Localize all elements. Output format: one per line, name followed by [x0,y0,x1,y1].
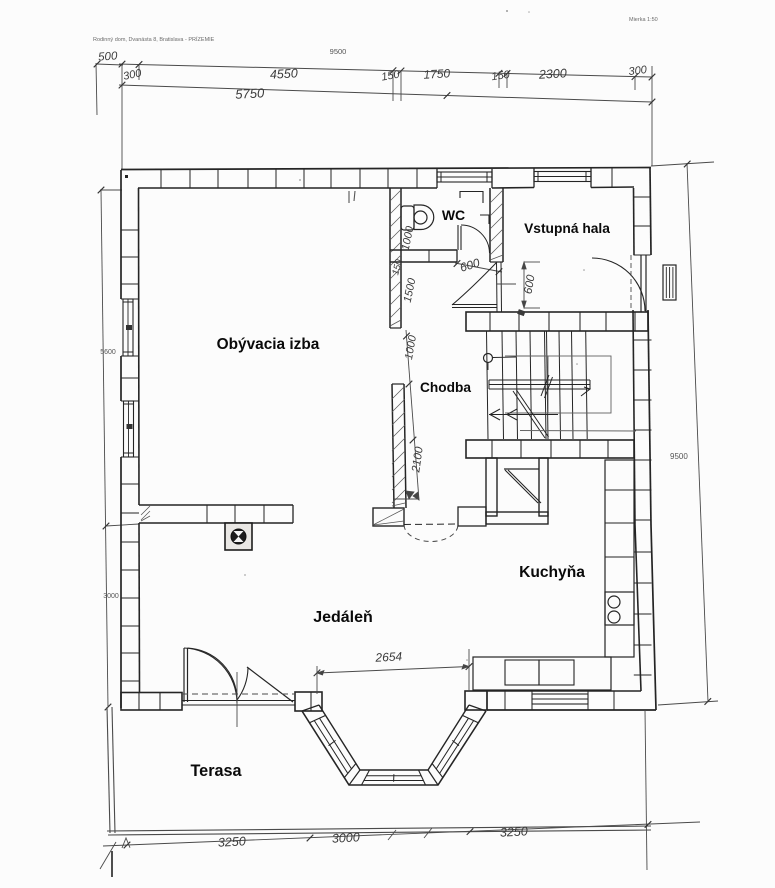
svg-text:300: 300 [628,64,648,78]
svg-text:5750: 5750 [235,85,265,102]
svg-text:Terasa: Terasa [191,762,243,780]
svg-text:Rodinný dom, Dvanásta 8, Brati: Rodinný dom, Dvanásta 8, Bratislava - PR… [93,36,215,43]
svg-text:3250: 3250 [500,824,529,839]
svg-text:Mierka 1:50: Mierka 1:50 [629,17,658,23]
svg-text:3250: 3250 [218,834,247,849]
svg-text:2654: 2654 [374,649,403,664]
svg-text:500: 500 [98,50,119,63]
svg-text:3000: 3000 [103,593,119,600]
svg-text:Kuchyňa: Kuchyňa [519,564,585,581]
svg-text:5600: 5600 [100,349,116,356]
svg-text:3000: 3000 [332,830,361,845]
svg-text:Obývacia izba: Obývacia izba [217,336,320,353]
svg-text:Jedáleň: Jedáleň [313,609,373,626]
svg-text:1750: 1750 [423,66,451,81]
svg-text:4550: 4550 [270,66,299,81]
svg-text:Vstupná hala: Vstupná hala [524,221,610,236]
svg-text:9500: 9500 [670,452,688,461]
svg-text:2300: 2300 [538,66,568,81]
svg-text:WC: WC [442,207,465,223]
svg-text:Chodba: Chodba [420,380,471,395]
svg-text:9500: 9500 [330,47,347,56]
